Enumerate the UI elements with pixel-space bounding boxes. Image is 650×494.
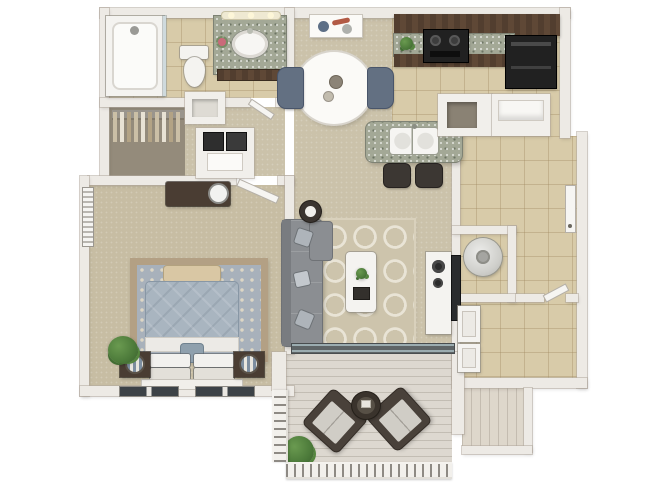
wall-bathroom-bottom [100,98,250,107]
bar-stool-2 [416,164,442,187]
range-stove [424,30,468,62]
vanity-cabinet [218,70,284,80]
entry-door [566,186,575,232]
oven-handle [430,51,460,57]
wall-utility-right [508,226,516,302]
round-patio-table [352,392,380,419]
washer-dryer-top [208,154,242,170]
window-bottom-left [120,387,178,396]
abstract-wall-art [310,15,362,37]
sofa-backrest [282,220,291,346]
railing-left [272,390,288,462]
throw-pillow [294,271,311,288]
art-blue-shape [318,21,329,32]
bathtub-shower-combo [106,16,164,96]
wall-storage-right [524,388,532,452]
tray-items [362,401,370,407]
dining-chair-left [278,68,303,108]
faucet-icon [247,28,253,34]
sofa-chaise [310,222,332,260]
fridge-split-line [511,66,551,69]
wall-right-outer [577,132,587,388]
closet-shelf [499,101,543,120]
shower-head-icon [130,26,139,35]
coffee-table-tray [354,288,369,299]
wall-laundry-top-a [516,294,544,302]
wall-utility-bottom [452,294,516,302]
linen-shelf [192,99,218,117]
window-blinds-left [83,188,93,246]
dining-chair-right [368,68,393,108]
refrigerator [506,36,556,88]
wall-storage-bottom [462,446,532,454]
burner [430,35,441,46]
wall-laundry-top-b [566,294,578,302]
counter-plant [400,37,413,50]
floor-plan-render [0,0,650,494]
wall-laundry-bottom [452,378,587,388]
stacked-washer [204,133,223,150]
foot-bench [164,266,220,282]
speaker-top [432,260,445,273]
double-basin-sink [390,128,438,154]
table-centerpiece [330,76,342,88]
wall-patio-left-stub [272,352,286,390]
queen-bed [146,282,238,386]
granite-vanity [214,16,286,74]
round-dining-table [296,52,372,124]
pantry-interior [447,102,477,128]
pillow [150,354,190,367]
blue-comforter [146,282,238,342]
glass-shower-door [163,16,166,96]
throw-pillow [295,310,315,330]
hanging-clothes [113,112,183,142]
door-handle-icon [568,224,572,228]
side-table-top [305,206,316,217]
linen-closet [185,92,225,124]
island-faucet-icon [412,124,417,129]
railing-bottom [286,462,452,479]
bar-stool-1 [384,164,410,187]
burner [449,35,460,46]
upper-cabinets [394,14,560,36]
art-gray-shape [342,24,352,34]
fridge-top-line [511,42,551,46]
wall-utility-top [452,226,516,234]
laundry-cabinet-upper [458,306,480,342]
wall-kitchen-right [560,8,570,138]
water-heater-cap [476,250,490,264]
chair-cushion [312,401,356,445]
sectional-sofa [282,220,322,346]
speaker-bottom [433,278,443,288]
media-console [426,252,451,334]
cabinet-panel [462,348,476,368]
washer-dryer-closet [196,128,254,178]
cabinet-panel [462,311,476,337]
nightstand-right [234,352,264,377]
sliding-glass-door [292,344,454,353]
dresser [166,182,230,206]
flower-vase [218,38,226,46]
pillow [194,354,234,367]
shelf-closet [492,94,550,136]
round-mirror [210,185,227,202]
stacked-dryer [227,133,246,150]
coffee-table-plant [356,268,367,279]
vanity-sink [232,30,268,58]
storage-closet-floor [462,388,524,446]
window-bottom-right [196,387,254,396]
coffee-table [346,252,376,312]
table-decor [324,92,333,101]
vanity-lights [222,12,280,19]
laundry-cabinet-lower [458,344,480,372]
pillow [150,368,190,380]
bedroom-plant [108,336,138,364]
round-side-table [300,201,321,222]
water-heater [464,238,502,276]
pantry-closet [438,94,492,136]
striped-lamp-right [241,356,257,372]
pillow [194,368,234,380]
